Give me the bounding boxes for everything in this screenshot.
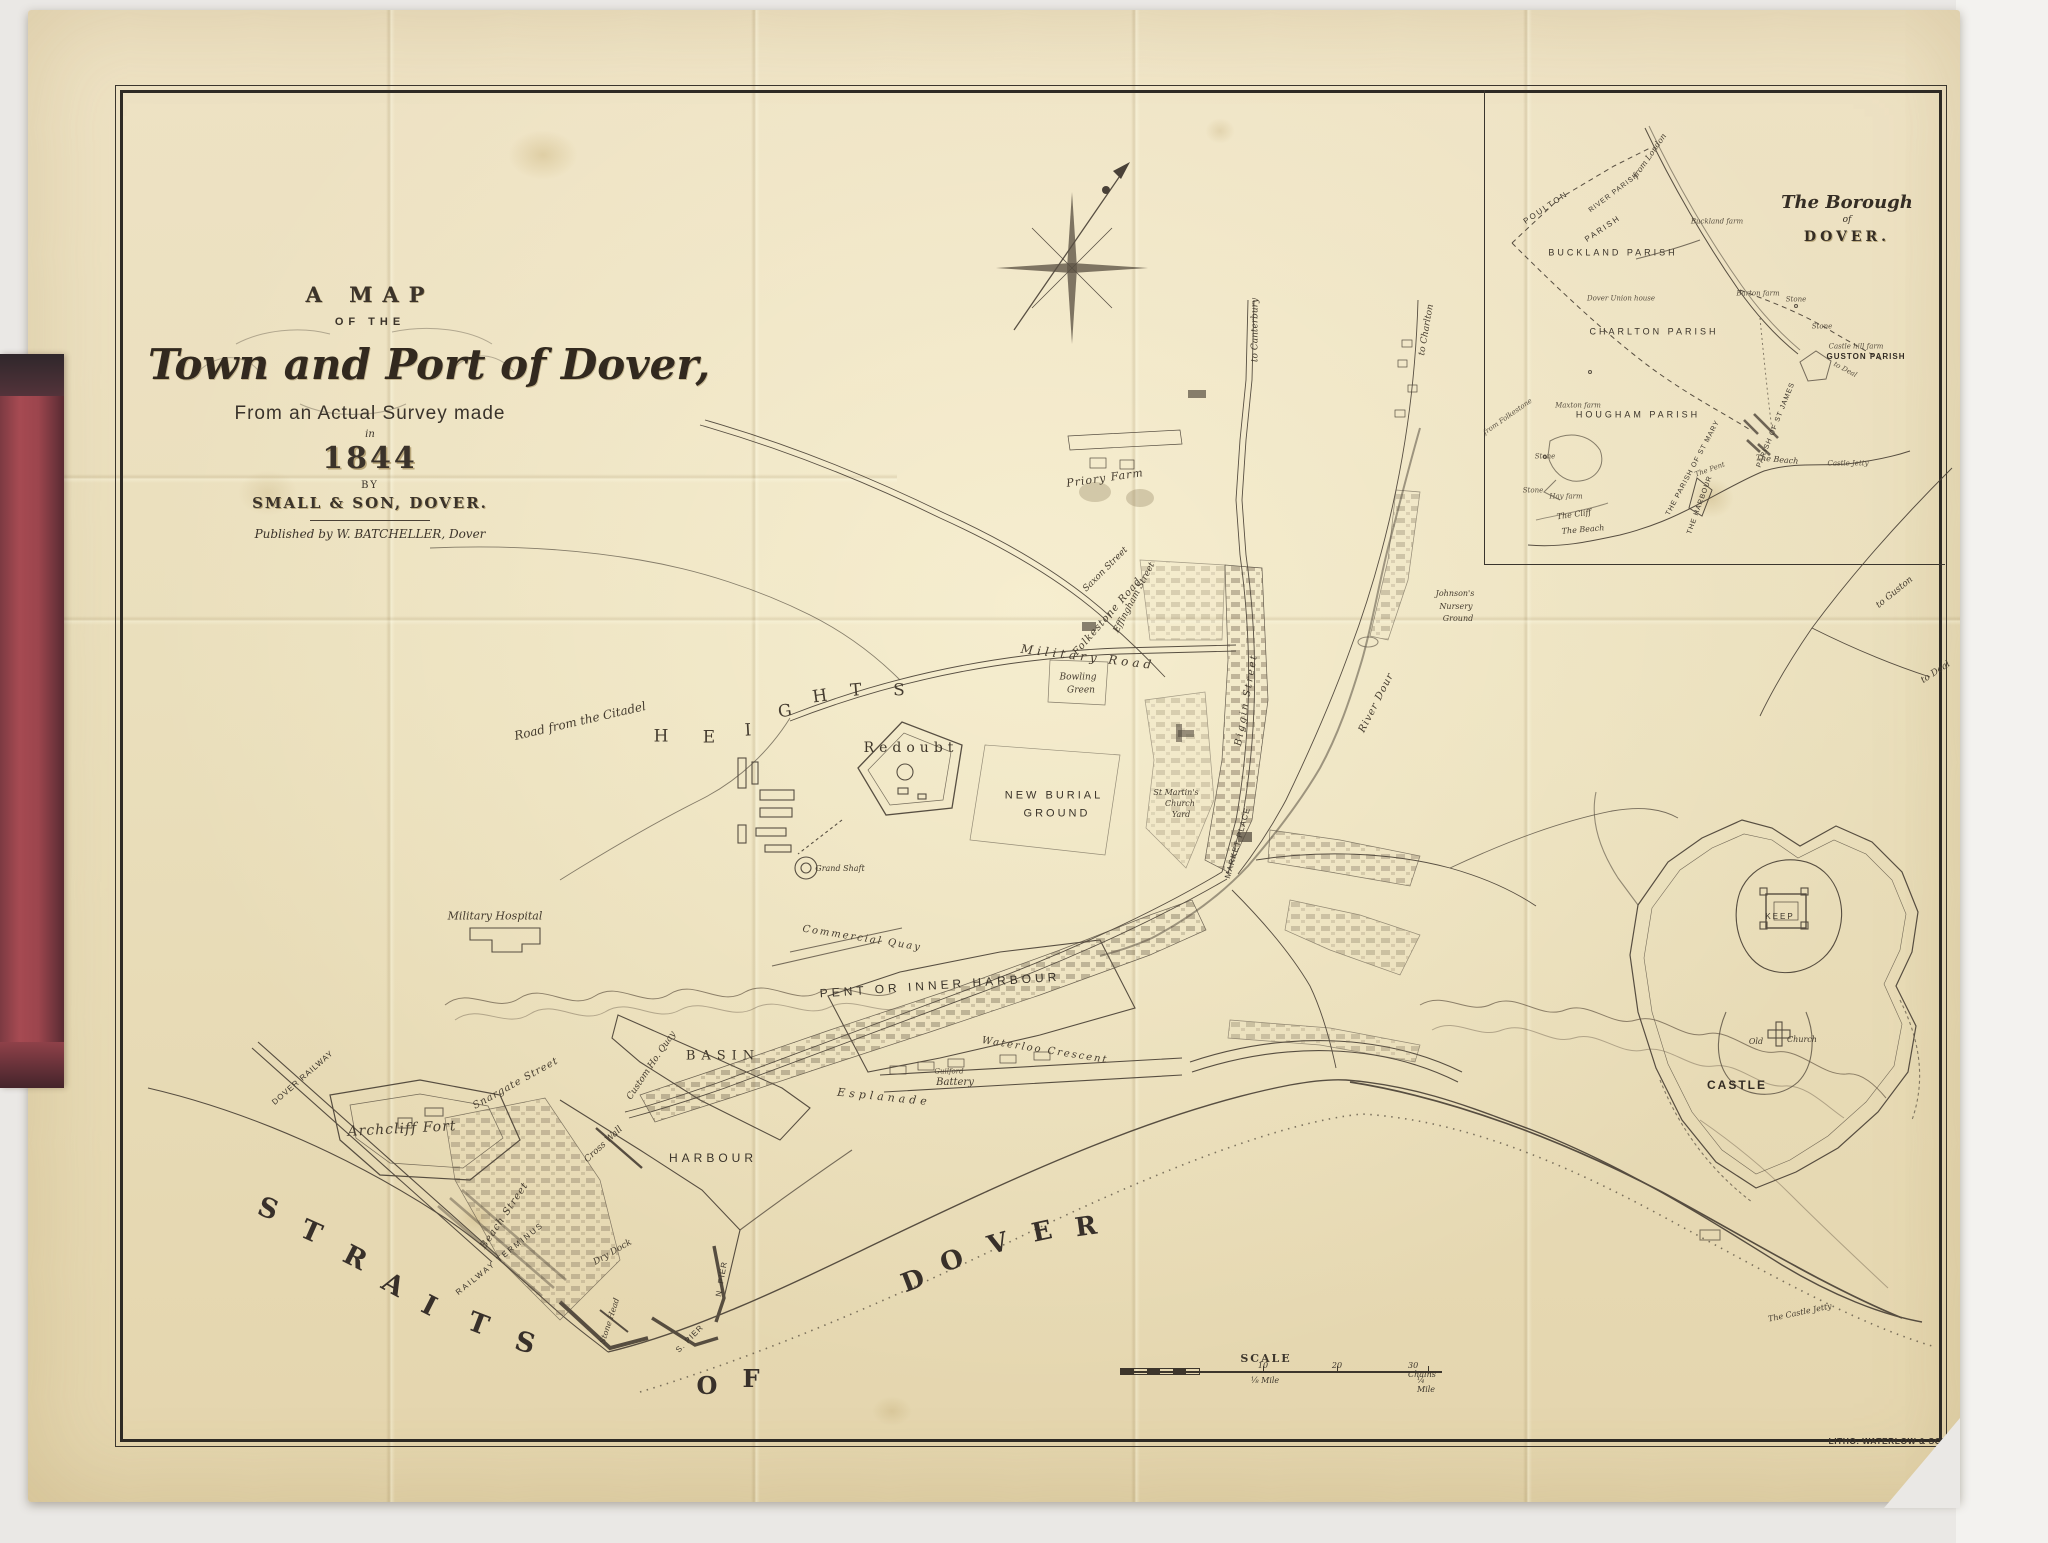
map-label: NEW BURIAL [1005,791,1103,802]
scale-bar-subdivisions [1120,1368,1200,1375]
map-label: Dry Dock [592,1238,633,1267]
map-label: Stone [1523,488,1543,495]
map-label: S [893,683,905,700]
map-label: Stone [1812,324,1832,331]
scanned-map-photo: A MAP OF THE Town and Port of Dover, Fro… [0,0,2048,1543]
map-label: PENT OR INNER HARBOUR [819,971,1060,1000]
map-label: to Deal [1832,361,1858,379]
map-label: River Dour [1358,672,1397,735]
map-label: O [937,1245,967,1277]
map-label: Dover Union house [1587,296,1655,303]
map-label: KEEP [1765,913,1794,921]
map-label: Redoubt [864,741,959,755]
map-label: to Deal [1920,660,1952,685]
map-label: Yard [1172,811,1190,819]
map-label: S [254,1193,282,1225]
map-label: R [1073,1213,1098,1242]
map-label: Buckland farm [1691,219,1743,226]
map-label: Church [1787,1036,1817,1044]
map-label: Cross Wall [583,1125,624,1165]
map-label: CHARLTON PARISH [1589,328,1718,337]
map-label: MARKET PLACE [1224,806,1252,879]
map-label: HARBOUR [669,1152,757,1164]
map-label: I [744,722,752,739]
map-label: to Guston [1875,576,1915,611]
map-label: Maxton farm [1555,403,1601,410]
map-label: Grand Shaft [815,865,864,873]
scale-label: ⅛ Mile [1251,1376,1279,1385]
map-label: Esplanade [837,1087,932,1108]
scale-label: 10 [1258,1361,1268,1370]
map-label: F [742,1367,759,1391]
map-label: T [296,1216,325,1249]
map-label: Barton farm [1736,291,1779,298]
map-label: E [703,730,715,747]
map-label: Biggin Street [1234,653,1260,747]
map-label: RIVER PARISH [1588,172,1641,214]
map-label: Ground [1443,615,1473,623]
map-label: GROUND [1024,809,1091,820]
map-label: RAILWAY TERMINUS [455,1221,546,1297]
map-label: The Cliff [1556,509,1591,522]
map-label: H [654,729,669,746]
map-label: Commercial Quay [802,925,923,954]
map-label: Old [1749,1038,1763,1046]
map-label: N. PIER [715,1261,729,1298]
map-label: Battery [936,1078,974,1088]
map-label: Castle Jetty [1827,461,1868,468]
map-label: S [512,1327,538,1358]
map-label: I [417,1291,441,1321]
map-label: Church [1165,800,1195,808]
map-label: to Charlton [1418,304,1436,357]
book-spine [0,354,64,1088]
map-label: Stone [1786,297,1806,304]
map-label: H [811,688,828,707]
map-label: Custom Ho. Quay [626,1030,678,1102]
map-label: to Canterbury [1252,298,1261,362]
map-label: T [464,1308,492,1340]
map-label: D [898,1265,928,1297]
map-label: PARISH [1584,214,1623,244]
map-label: The Beach [1561,524,1604,536]
map-label: DOVER RAILWAY [271,1049,335,1106]
map-label: Hay farm [1549,494,1582,501]
map-label: from London [1632,132,1668,179]
map-label: Road from the Citadel [513,700,647,742]
map-label: Bowling [1059,674,1096,683]
map-label: from Folkestone [1482,398,1533,437]
map-label: Green [1067,687,1095,696]
map-label: Snargate Street [472,1056,561,1111]
map-label: A [377,1268,408,1302]
scale-bar: SCALE 10 20 30 Chains ⅛ Mile ¼ Mile [1110,1352,1450,1392]
map-label: O [697,1374,718,1398]
map-label: GUSTON PARISH [1827,353,1906,361]
map-label: Nursery [1439,603,1472,611]
map-label: Saxon Street [1082,546,1130,594]
map-label: Guilford [934,1069,963,1076]
map-label: BUCKLAND PARISH [1548,249,1677,258]
scale-label: 20 [1332,1361,1342,1370]
map-label: Johnson's [1436,590,1475,598]
map-label: V [985,1229,1012,1260]
map-label: Stone [1535,454,1555,461]
scale-label: ¼ Mile [1417,1376,1439,1394]
map-label: Waterloo Crescent [981,1036,1109,1066]
map-labels-layer: STRAITSOFDOVERHEIGHTSPENT OR INNER HARBO… [0,0,2048,1543]
map-label: CASTLE [1707,1079,1767,1091]
map-label: Priory Farm [1066,467,1145,489]
map-label: Stone Head [599,1297,621,1345]
map-label: S. PIER [675,1324,706,1355]
map-label: THE HARBOUR [1686,475,1714,536]
map-label: E [1030,1217,1055,1247]
map-label: St Martin's [1153,789,1198,797]
map-label: Castle hill farm [1829,344,1884,351]
map-label: POULTON [1522,190,1570,226]
map-label: Archcliff Fort [347,1119,457,1139]
map-label: The Castle Jetty [1768,1302,1833,1323]
map-label: BASIN [686,1050,760,1063]
map-label: HOUGHAM PARISH [1576,411,1700,420]
map-label: G [777,703,793,722]
map-label: R [339,1241,371,1275]
map-label: T [850,682,863,700]
map-label: Military Hospital [448,911,543,922]
